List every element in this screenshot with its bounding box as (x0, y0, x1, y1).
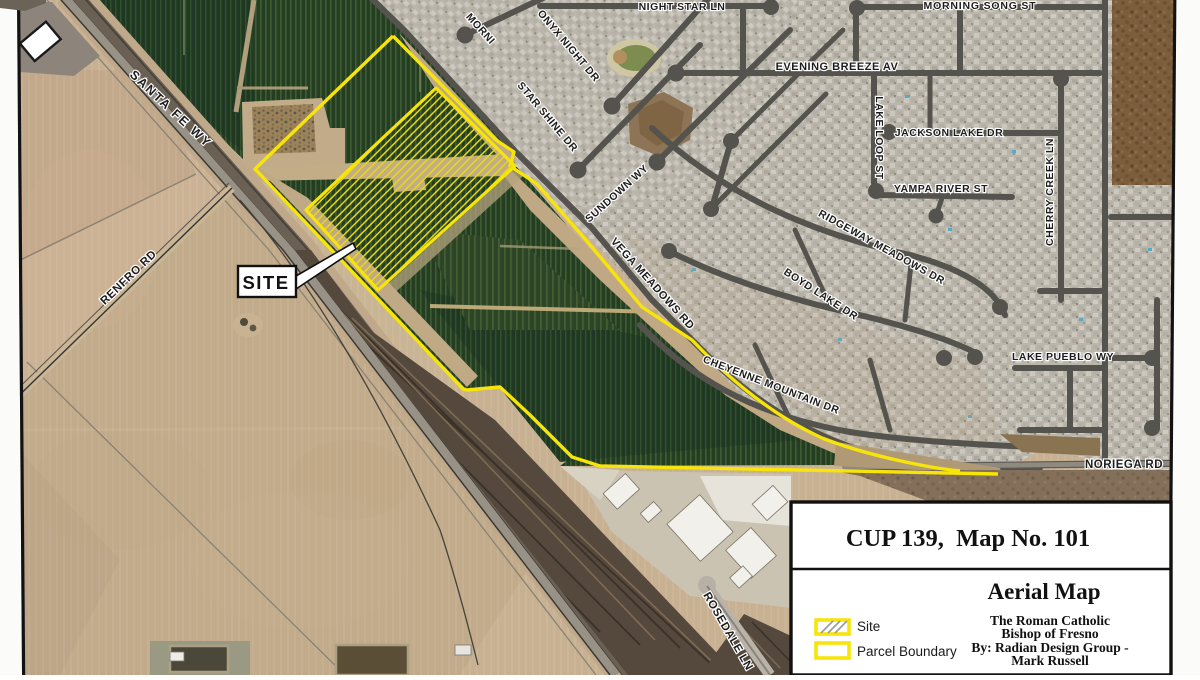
svg-text:YAMPA RIVER ST: YAMPA RIVER ST (894, 183, 988, 195)
svg-text:Bishop of Fresno: Bishop of Fresno (1001, 626, 1099, 641)
svg-text:Aerial Map: Aerial Map (987, 579, 1100, 604)
svg-text:LAKE LOOP ST: LAKE LOOP ST (873, 96, 885, 179)
svg-text:SITE: SITE (242, 272, 289, 293)
svg-text:JACKSON LAKE DR: JACKSON LAKE DR (895, 127, 1003, 139)
svg-text:CHERRY CREEK LN: CHERRY CREEK LN (1044, 138, 1056, 246)
svg-text:Mark Russell: Mark Russell (1011, 653, 1089, 668)
svg-text:LAKE PUEBLO WY: LAKE PUEBLO WY (1012, 351, 1114, 363)
svg-text:CUP 139, Map No. 101: CUP 139, Map No. 101 (846, 525, 1090, 552)
svg-text:MORNING SONG ST: MORNING SONG ST (924, 0, 1037, 12)
svg-text:Parcel Boundary: Parcel Boundary (857, 644, 957, 659)
svg-text:NORIEGA RD: NORIEGA RD (1085, 459, 1163, 471)
svg-text:Site: Site (857, 619, 880, 634)
svg-text:EVENING BREEZE AV: EVENING BREEZE AV (776, 61, 899, 73)
svg-text:NIGHT STAR LN: NIGHT STAR LN (639, 1, 726, 13)
